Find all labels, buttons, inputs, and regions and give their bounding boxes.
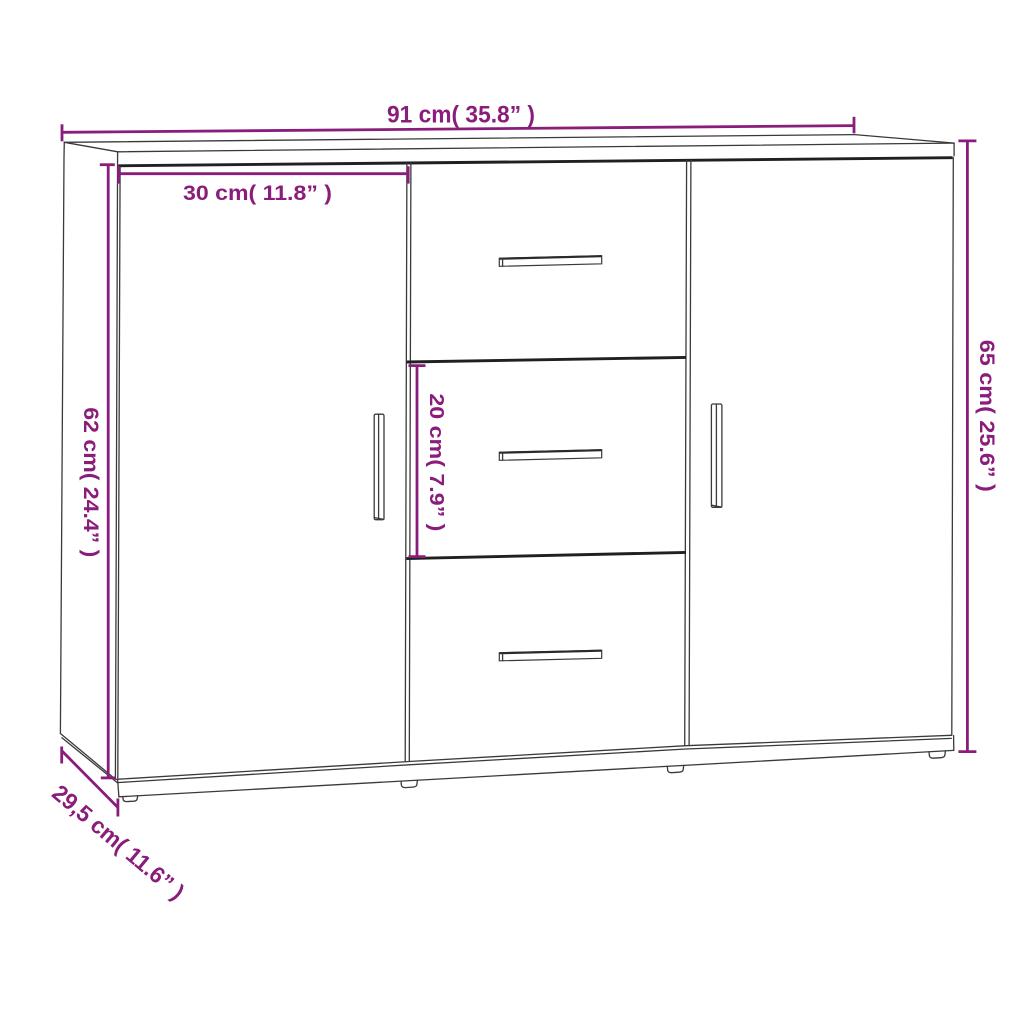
svg-text:91 cm( 35.8” ): 91 cm( 35.8” )	[387, 102, 535, 129]
svg-text:30 cm( 11.8” ): 30 cm( 11.8” )	[183, 181, 332, 205]
svg-text:62 cm( 24.4” ): 62 cm( 24.4” )	[79, 407, 102, 557]
svg-text:20 cm( 7.9” ): 20 cm( 7.9” )	[425, 393, 447, 531]
svg-text:65 cm( 25.6” ): 65 cm( 25.6” )	[975, 340, 998, 492]
